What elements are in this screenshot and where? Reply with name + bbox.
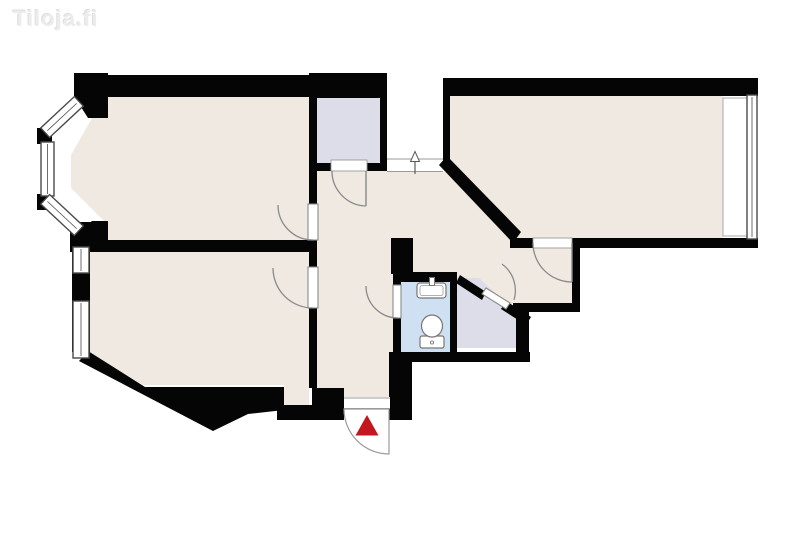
window-recess-topright — [723, 98, 748, 236]
wall-notch-bottom — [277, 405, 313, 420]
wall-bathroom-right — [450, 272, 457, 352]
wall-closet-top-left — [309, 97, 317, 171]
wall-bay-top-corner — [74, 73, 108, 118]
wall-room-topright-bottom-left — [510, 238, 533, 248]
door-bathroom-leaf — [393, 285, 401, 318]
wall-hall-left-seg1 — [309, 171, 317, 205]
wall-room-topright-bottom-right — [572, 238, 758, 248]
wall-closet-top-bottom-right — [366, 163, 387, 171]
wall-bathroom-left-upper — [393, 274, 401, 285]
door-room-topright-threshold — [533, 238, 572, 248]
wall-entrance-right-jamb — [389, 352, 412, 420]
wall-chunk-above-bathroom — [391, 238, 413, 274]
wall-nook-bottom — [513, 303, 580, 312]
floorplan-page: Tiloja.fi — [0, 0, 800, 533]
wall-room-topright-top — [443, 78, 758, 96]
toilet-flush-button — [430, 341, 433, 344]
wall-closet-top-top — [309, 73, 387, 98]
closet-top-floor — [316, 98, 380, 163]
sink-faucet — [430, 278, 435, 286]
entrance-threshold — [344, 397, 390, 409]
wall-bottom-center — [393, 352, 530, 362]
wall-nook-right — [572, 238, 580, 312]
door-room-bottomleft-leaf — [308, 267, 318, 308]
wall-room-topleft-top — [77, 75, 318, 97]
door-room-topleft-leaf — [308, 204, 318, 240]
floorplan-drawing — [0, 0, 800, 533]
watermark-logo: Tiloja.fi — [13, 6, 99, 32]
room-topleft-floor — [71, 97, 309, 240]
wall-hall-left-seg3 — [309, 308, 317, 388]
wall-closet-top-right — [380, 97, 387, 171]
toilet-bowl — [422, 315, 443, 337]
wall-entrance-left-jamb — [312, 388, 344, 420]
wall-closet-top-bottom-left — [309, 163, 332, 171]
wall-room-topright-left — [443, 96, 450, 166]
wall-bathroom-left-lower — [393, 318, 401, 352]
wall-between-left-rooms — [85, 240, 317, 252]
door-closet-top-threshold — [331, 160, 367, 171]
